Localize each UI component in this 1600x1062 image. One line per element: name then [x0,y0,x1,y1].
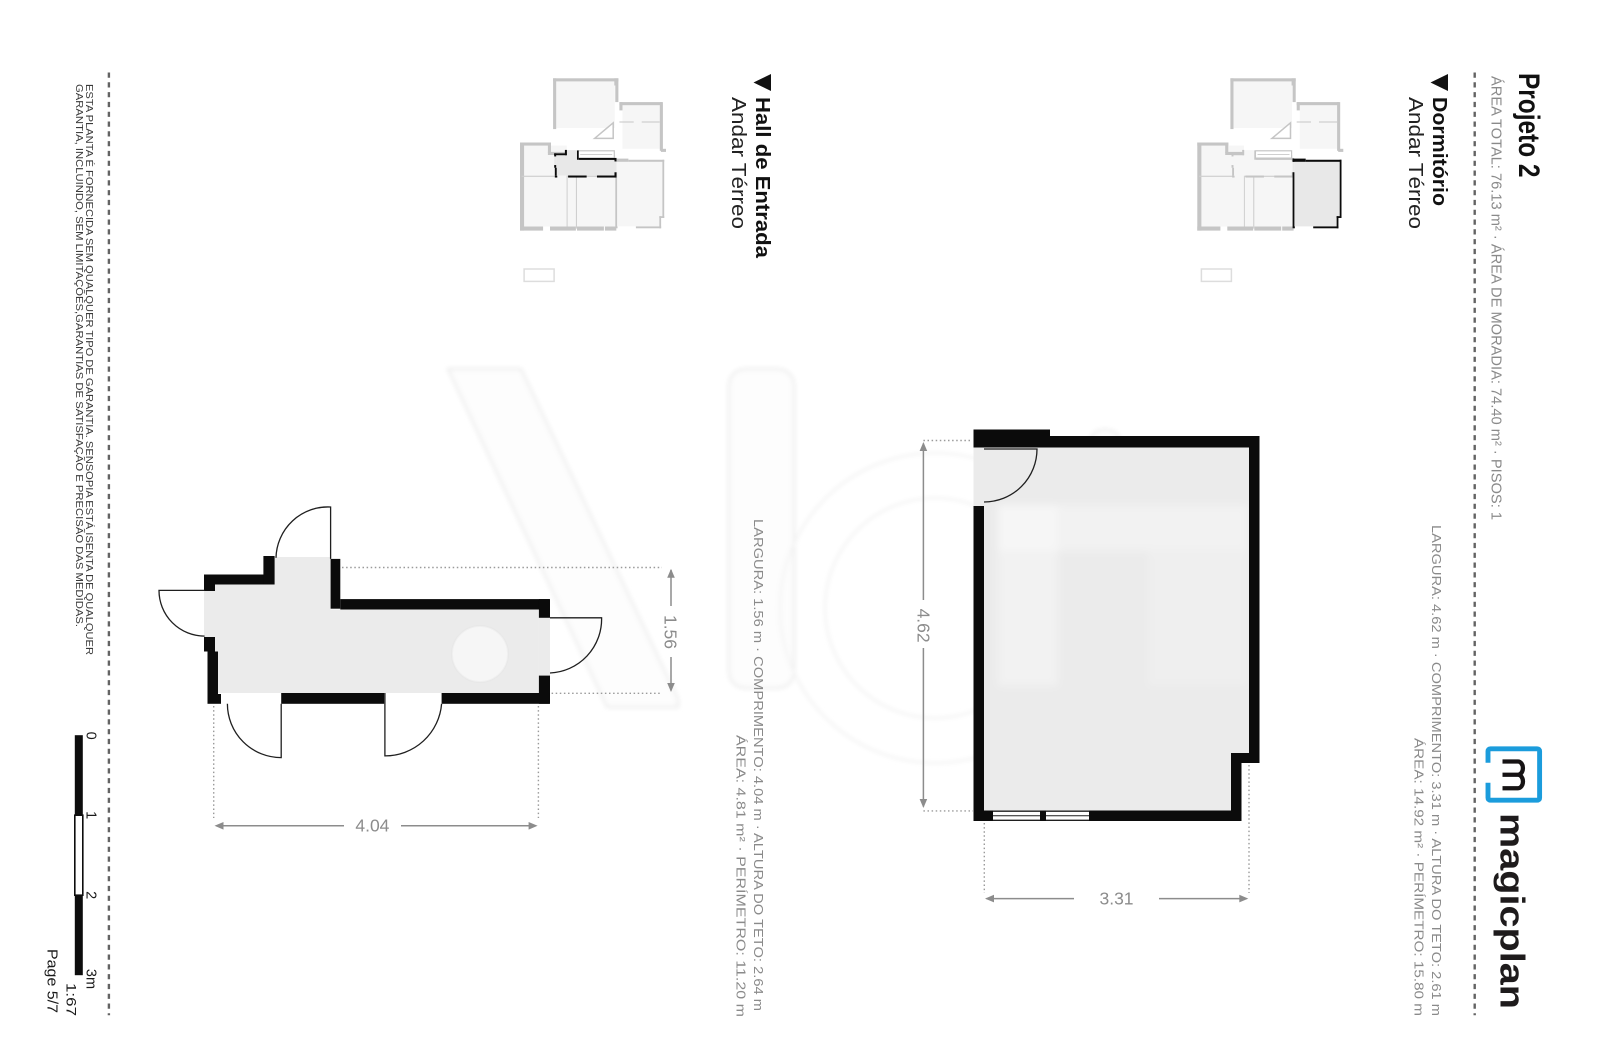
svg-text:4.04: 4.04 [355,816,389,836]
svg-text:GARANTIA, INCLUINDO, SEM LIMIT: GARANTIA, INCLUINDO, SEM LIMITAÇÕES,GARA… [73,84,86,627]
svg-text:LARGURA: 4.62 m · COMPRIMENTO:: LARGURA: 4.62 m · COMPRIMENTO: 3.31 m · … [1429,525,1444,1016]
svg-text:Hall de Entrada: Hall de Entrada [751,97,774,259]
svg-text:Andar Térreo: Andar Térreo [1404,97,1426,229]
svg-text:1: 1 [83,811,99,819]
svg-text:4.62: 4.62 [913,609,933,643]
svg-text:Page 5/7: Page 5/7 [44,949,60,1013]
svg-text:Andar Térreo: Andar Térreo [727,97,749,229]
svg-text:2: 2 [83,891,99,899]
svg-text:LARGURA: 1.56 m · COMPRIMENTO:: LARGURA: 1.56 m · COMPRIMENTO: 4.04 m · … [751,519,766,1011]
svg-text:ÁREA: 14.92 m² · PERÍMETRO: 15: ÁREA: 14.92 m² · PERÍMETRO: 15.80 m [1412,738,1427,1016]
svg-text:1.56: 1.56 [661,615,681,649]
svg-text:3m: 3m [83,969,99,989]
svg-text:Projeto 2: Projeto 2 [1512,73,1545,178]
svg-text:1:67: 1:67 [64,983,79,1016]
svg-text:ÁREA TOTAL: 76.13 m² · ÁREA DE: ÁREA TOTAL: 76.13 m² · ÁREA DE MORADIA: … [1488,76,1505,520]
svg-text:0: 0 [83,732,99,740]
svg-text:Dormitório: Dormitório [1428,97,1451,206]
svg-text:ÁREA: 4.81 m² · PERÍMETRO: 11.: ÁREA: 4.81 m² · PERÍMETRO: 11.20 m [734,735,749,1017]
svg-text:3.31: 3.31 [1099,889,1133,909]
svg-text:magicplan: magicplan [1493,813,1531,1009]
